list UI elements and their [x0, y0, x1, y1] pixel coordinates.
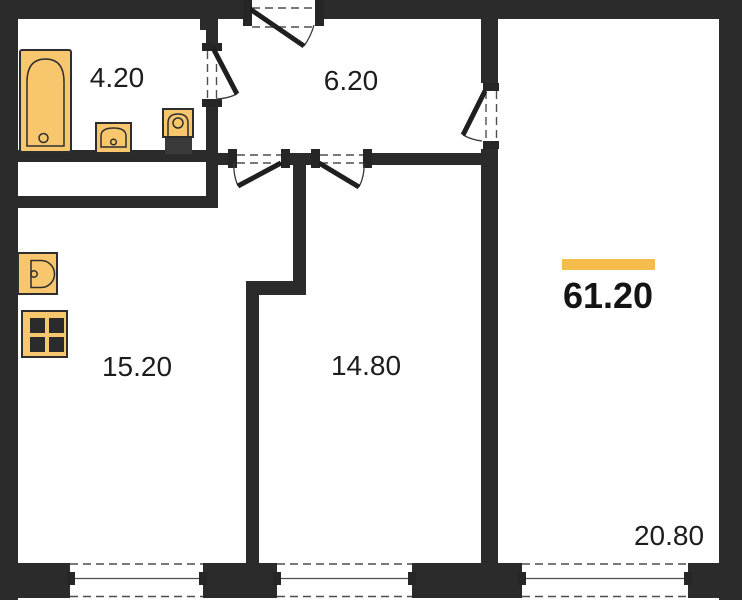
room-middle-area-label: 14.80 — [331, 350, 401, 381]
door-room-right — [463, 83, 499, 149]
window-kitchen — [67, 564, 207, 597]
bathtub-icon — [20, 50, 71, 152]
door-jamb — [228, 149, 237, 168]
wall-hall-bottom-c — [372, 153, 497, 165]
wall-top-right — [315, 0, 742, 19]
door-leaf — [463, 91, 485, 135]
window-room-right — [518, 564, 692, 597]
door-jamb — [243, 0, 252, 26]
window-jamb — [67, 572, 75, 585]
wall-divider-right-upper — [481, 19, 498, 83]
window-jamb — [518, 572, 526, 585]
stove-burner — [49, 318, 64, 333]
wall-right — [719, 0, 742, 600]
door-swing-arc — [216, 94, 237, 99]
sink-icon — [96, 123, 131, 153]
door-leaf — [319, 163, 359, 187]
door-swing-arc — [304, 25, 314, 46]
door-swing-arc — [463, 135, 482, 141]
window-jamb — [273, 572, 281, 585]
door-room-middle — [311, 149, 372, 187]
wall-hall-bottom-a — [206, 153, 228, 165]
wall-left — [0, 0, 18, 600]
kitchen-sink-icon — [18, 253, 57, 294]
kitchen-area-label: 15.20 — [102, 351, 172, 382]
door-entrance — [243, 0, 324, 46]
toilet-icon — [163, 109, 193, 154]
total-area-accent-bar — [562, 259, 655, 270]
toilet-tank — [165, 136, 192, 154]
wall-hall-bottom-b — [290, 153, 311, 165]
stove-burner — [30, 337, 45, 352]
room-right-area-label: 20.80 — [634, 520, 704, 551]
wall-bathroom-upper — [206, 19, 218, 43]
door-bathroom — [202, 43, 237, 107]
door-jamb — [315, 0, 324, 26]
door-kitchen — [228, 149, 290, 186]
wall-divider-kitchen-lower — [246, 281, 259, 563]
window-jamb — [408, 572, 416, 585]
door-jamb — [202, 99, 222, 107]
wall-duct-bottom — [18, 196, 215, 208]
hallway-area-label: 6.20 — [324, 65, 379, 96]
stove-burner — [49, 337, 64, 352]
door-jamb — [281, 149, 290, 168]
stove-icon — [22, 311, 67, 357]
total-area-label: 61.20 — [563, 275, 653, 316]
bathroom-area-label: 4.20 — [90, 62, 145, 93]
window-room-middle — [273, 564, 416, 597]
wall-divider-right-lower — [481, 149, 498, 563]
window-jamb — [684, 572, 692, 585]
wall-divider-kitchen-upper — [293, 165, 306, 287]
window-jamb — [199, 572, 207, 585]
wall-bottom-block-3 — [412, 563, 522, 598]
wall-bottom-block-1 — [0, 563, 70, 598]
floor-plan-drawing: 4.20 6.20 15.20 14.80 20.80 61.20 — [0, 0, 742, 600]
door-leaf — [238, 163, 281, 186]
wall-top-left — [0, 0, 252, 19]
interior-walls — [0, 19, 498, 563]
door-jamb — [483, 83, 499, 91]
total-area-badge: 61.20 — [562, 259, 655, 316]
stove-burner — [30, 318, 45, 333]
wall-bottom-block-2 — [203, 563, 277, 598]
door-jamb — [483, 141, 499, 149]
wall-bottom-block-4 — [688, 563, 742, 598]
floor-plan: 4.20 6.20 15.20 14.80 20.80 61.20 — [0, 0, 742, 600]
